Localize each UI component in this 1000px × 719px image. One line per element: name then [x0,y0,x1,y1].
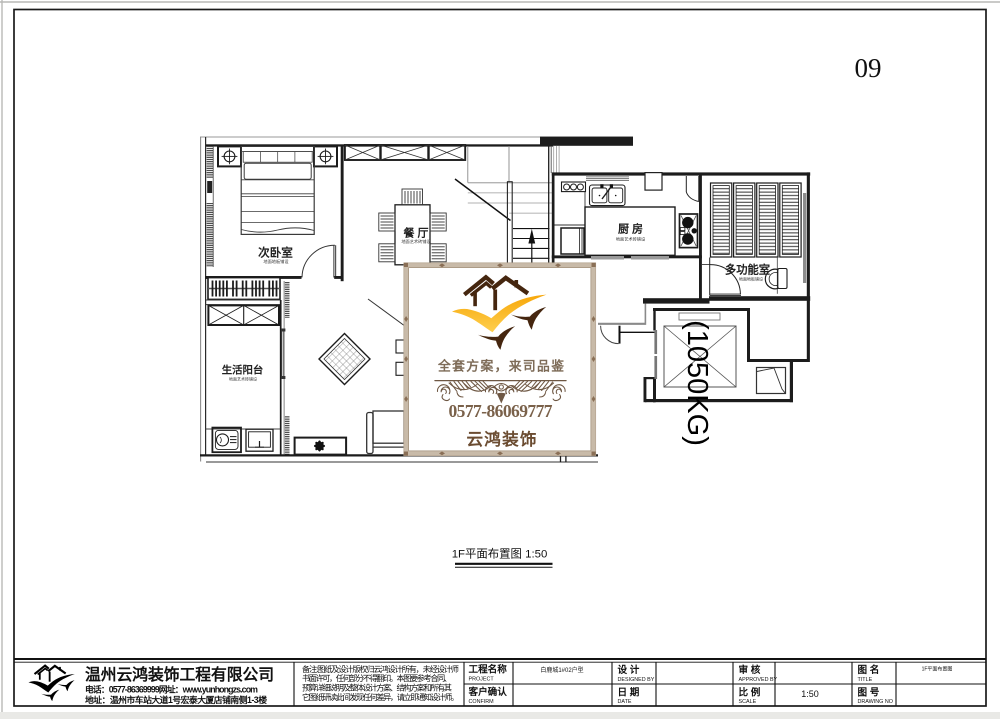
svg-text:地面地板铺设: 地面地板铺设 [263,258,289,265]
svg-text:09: 09 [855,53,882,83]
svg-text:书面许可，任何部分不得翻印。本图要参考合同、: 书面许可，任何部分不得翻印。本图要参考合同、 [302,673,452,683]
svg-text:地面地板铺设: 地面地板铺设 [739,276,763,282]
svg-text:DATE: DATE [618,699,632,705]
svg-text:多功能室: 多功能室 [725,263,770,277]
svg-text:地面艺术砖铺设: 地面艺术砖铺设 [401,238,431,245]
svg-text:次卧室: 次卧室 [258,246,293,260]
svg-text:设 计: 设 计 [618,664,640,676]
svg-text:SCALE: SCALE [739,699,757,705]
svg-text:(1050KG): (1050KG) [681,320,713,446]
svg-text:客户确认: 客户确认 [468,686,508,698]
svg-text:日 期: 日 期 [618,687,640,699]
svg-text:审 核: 审 核 [739,664,761,676]
svg-text:PROJECT: PROJECT [469,677,495,683]
svg-text:DESIGNED BY: DESIGNED BY [618,677,655,683]
svg-text:1:50: 1:50 [801,689,819,699]
svg-text:图 名: 图 名 [858,664,880,676]
svg-text:云鸿装饰: 云鸿装饰 [467,429,537,449]
svg-text:电话：0577-86369999网址：www.yunhong: 电话：0577-86369999网址：www.yunhongzs.com [85,684,258,695]
svg-text:DRAWING NO: DRAWING NO [858,699,893,705]
svg-text:地址：温州市车站大道1号宏泰大厦店铺南侧1-3楼: 地址：温州市车站大道1号宏泰大厦店铺南侧1-3楼 [85,694,267,705]
svg-text:厨 房: 厨 房 [618,222,643,236]
svg-text:地面艺术砖铺设: 地面艺术砖铺设 [616,236,646,243]
svg-text:比 例: 比 例 [739,687,761,699]
svg-text:备注:图纸及设计版权归云鸿设计所有，未经设计师: 备注:图纸及设计版权归云鸿设计所有，未经设计师 [302,664,459,674]
svg-text:CONFIRM: CONFIRM [469,699,495,705]
svg-text:工程名称: 工程名称 [469,664,508,676]
svg-text:白鹿城1#02户型: 白鹿城1#02户型 [540,666,583,674]
svg-text:1F平面布置图 1:50: 1F平面布置图 1:50 [452,548,548,561]
svg-text:全套方案，来司品鉴: 全套方案，来司品鉴 [437,359,564,374]
svg-text:图 号: 图 号 [858,688,880,699]
svg-text:APPROVED BY: APPROVED BY [739,677,778,683]
svg-text:温州云鸿装饰工程有限公司: 温州云鸿装饰工程有限公司 [85,665,274,684]
svg-text:0577-86069777: 0577-86069777 [449,401,553,421]
svg-text:预算详细说明及整体设计方案、结构方案和所有其: 预算详细说明及整体设计方案、结构方案和所有其 [302,683,452,693]
svg-text:1F平面布置图: 1F平面布置图 [922,666,953,673]
svg-text:它图纸研读此间发现任何差异，请立即通知设计师。: 它图纸研读此间发现任何差异，请立即通知设计师。 [302,692,459,702]
svg-text:生活阳台: 生活阳台 [222,364,264,377]
svg-text:TITLE: TITLE [858,677,873,683]
svg-text:餐 厅: 餐 厅 [402,226,428,240]
svg-text:地面艺术砖铺设: 地面艺术砖铺设 [229,376,257,382]
